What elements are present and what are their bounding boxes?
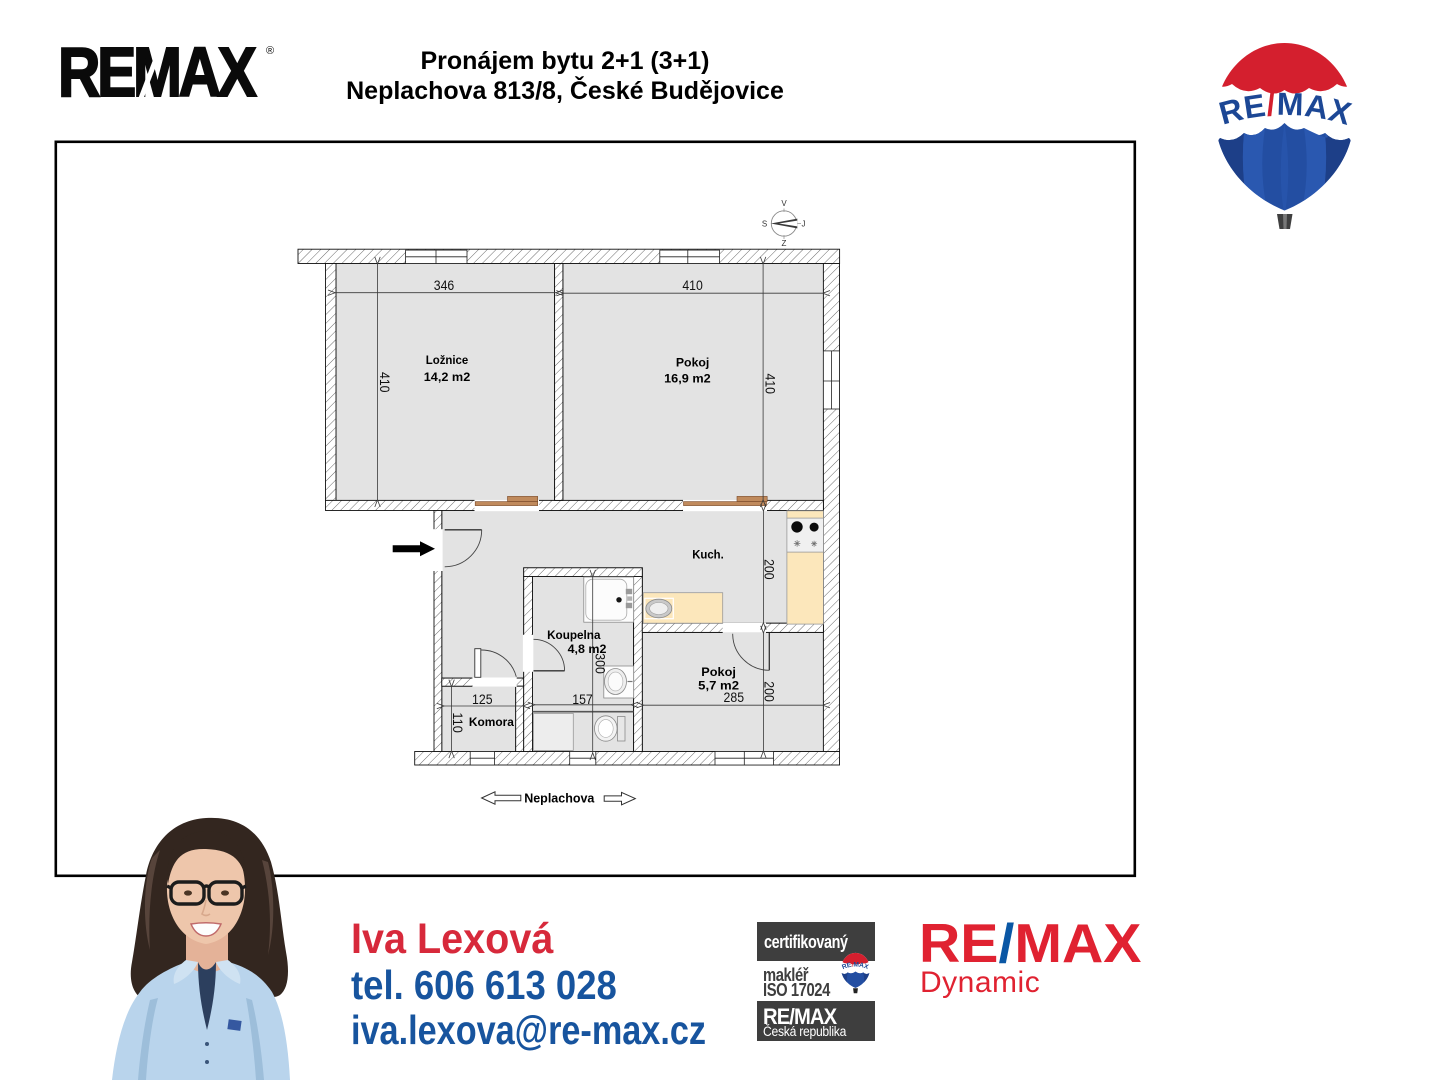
svg-text:Pokoj: Pokoj <box>676 356 710 370</box>
svg-text:Z: Z <box>782 239 787 248</box>
svg-text:125: 125 <box>472 692 493 707</box>
svg-text:Koupelna: Koupelna <box>547 628 601 642</box>
svg-text:300: 300 <box>592 653 607 674</box>
svg-text:16,9 m2: 16,9 m2 <box>664 372 711 386</box>
svg-text:14,2 m2: 14,2 m2 <box>424 370 471 384</box>
svg-text:Neplachova: Neplachova <box>524 792 595 806</box>
svg-text:110: 110 <box>450 712 465 733</box>
svg-text:J: J <box>802 220 806 229</box>
svg-text:Ložnice: Ložnice <box>426 353 469 367</box>
svg-text:410: 410 <box>377 372 392 393</box>
svg-text:200: 200 <box>762 559 777 580</box>
svg-text:4,8 m2: 4,8 m2 <box>568 642 607 656</box>
svg-text:V: V <box>781 199 787 208</box>
svg-text:200: 200 <box>762 681 777 702</box>
svg-text:346: 346 <box>434 278 455 293</box>
svg-text:157: 157 <box>572 692 593 707</box>
svg-text:410: 410 <box>682 278 703 293</box>
svg-text:S: S <box>762 220 767 229</box>
svg-text:Komora: Komora <box>469 715 514 729</box>
svg-text:410: 410 <box>762 374 777 395</box>
svg-text:Kuch.: Kuch. <box>692 548 724 562</box>
svg-text:Pokoj: Pokoj <box>701 665 736 679</box>
svg-text:5,7 m2: 5,7 m2 <box>698 679 739 693</box>
